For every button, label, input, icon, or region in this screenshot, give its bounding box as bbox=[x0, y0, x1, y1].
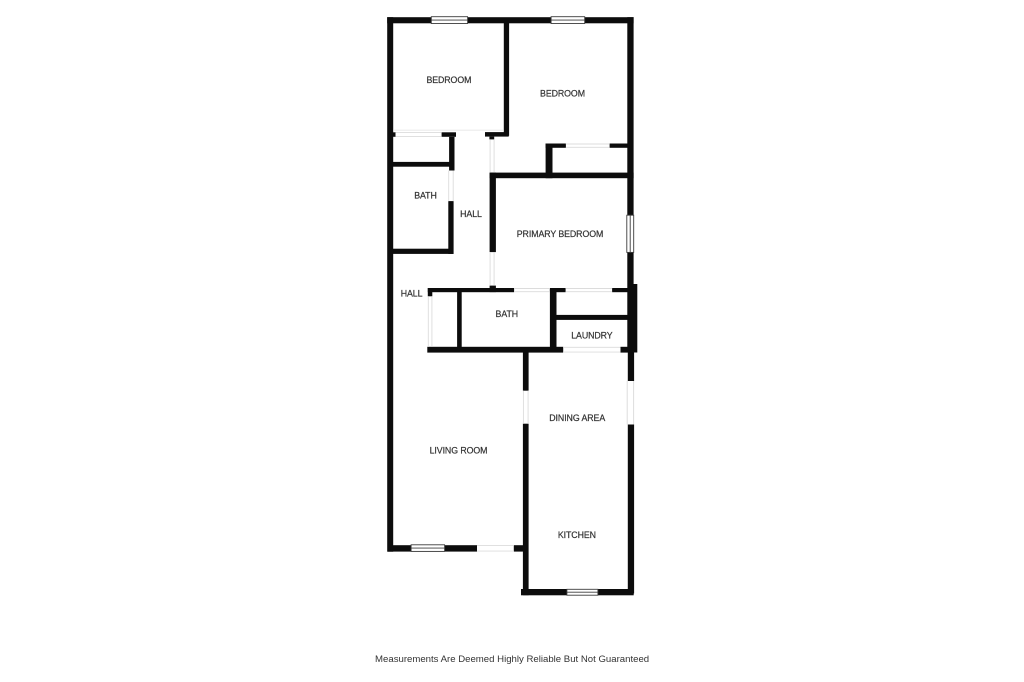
svg-text:HALL: HALL bbox=[401, 289, 423, 299]
svg-text:BATH: BATH bbox=[496, 309, 519, 319]
svg-text:LAUNDRY: LAUNDRY bbox=[571, 330, 613, 340]
svg-text:PRIMARY BEDROOM: PRIMARY BEDROOM bbox=[517, 229, 603, 239]
svg-text:Measurements Are Deemed Highly: Measurements Are Deemed Highly Reliable … bbox=[375, 654, 649, 665]
svg-text:DINING AREA: DINING AREA bbox=[549, 413, 605, 423]
svg-text:LIVING ROOM: LIVING ROOM bbox=[430, 446, 488, 456]
svg-text:KITCHEN: KITCHEN bbox=[558, 530, 596, 540]
svg-text:HALL: HALL bbox=[460, 209, 482, 219]
svg-text:BEDROOM: BEDROOM bbox=[540, 88, 585, 98]
svg-text:BATH: BATH bbox=[414, 190, 437, 200]
svg-text:BEDROOM: BEDROOM bbox=[426, 75, 471, 85]
